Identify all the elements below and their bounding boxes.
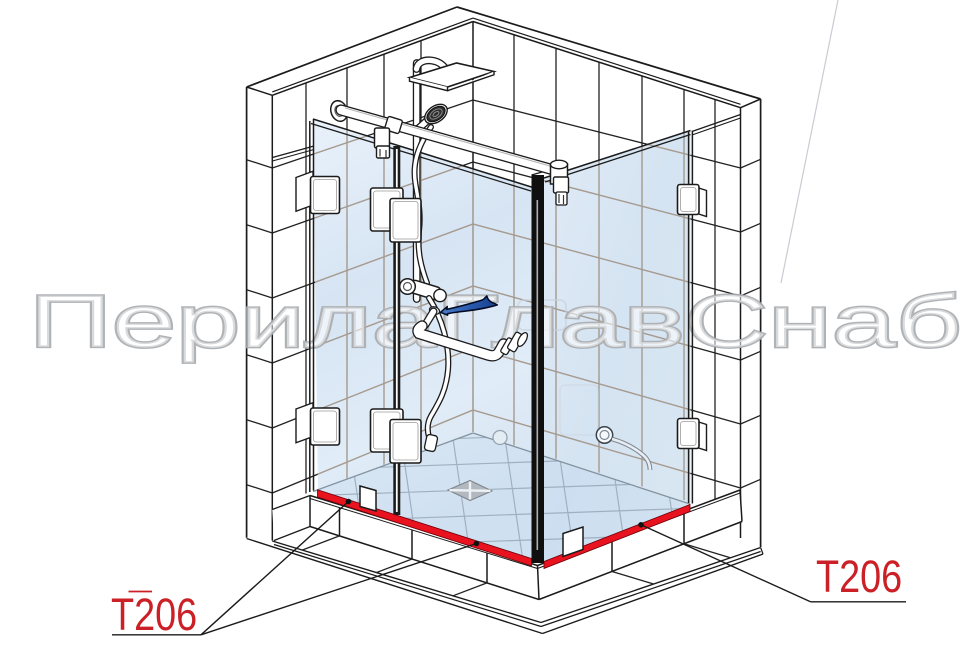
svg-text:Т206: Т206 [816,551,902,602]
svg-text:Т206: Т206 [111,589,197,640]
